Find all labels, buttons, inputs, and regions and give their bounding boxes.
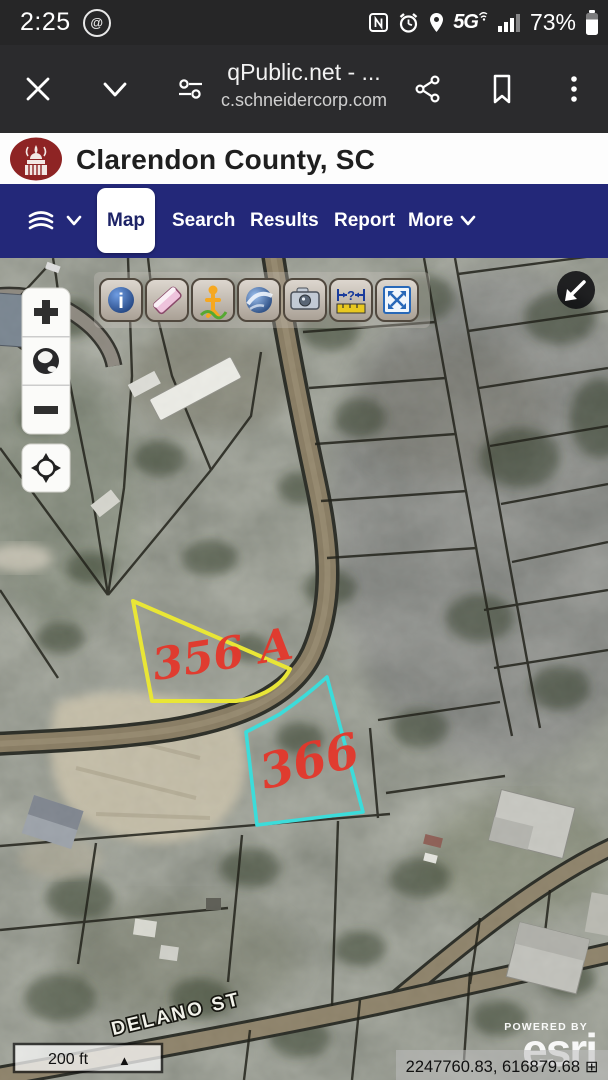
tab-report[interactable]: Report: [334, 210, 395, 232]
scale-label: 200 ft: [48, 1051, 89, 1068]
coordinates-value: 2247760.83, 616879.68: [406, 1058, 580, 1076]
map-toolbar: i: [94, 272, 430, 328]
signal-icon: [497, 13, 522, 33]
measure-tool-button[interactable]: ?: [330, 279, 372, 321]
battery-icon: [584, 9, 600, 36]
zoom-in-button[interactable]: [24, 290, 68, 335]
extent-arrows-icon: [384, 287, 410, 313]
page-domain: c.schneidercorp.com: [169, 90, 439, 111]
battery-percent: 73%: [530, 9, 576, 36]
phone-screen: 2:25 @ 5G: [0, 0, 608, 1080]
map-canvas[interactable]: 356 A 366 DELANO ST i: [0, 258, 608, 1080]
status-bar: 2:25 @ 5G: [0, 0, 608, 45]
alarm-icon: [397, 11, 420, 34]
locate-button[interactable]: [22, 444, 70, 492]
app-nav-bar: Map Search Results Report More: [0, 184, 608, 258]
photo-tool-button[interactable]: [284, 279, 326, 321]
google-earth-tool-button[interactable]: [238, 279, 280, 321]
tab-map[interactable]: Map: [97, 188, 155, 253]
tab-results[interactable]: Results: [250, 210, 319, 232]
zoom-extent-tool-button[interactable]: [376, 279, 418, 321]
location-icon: [428, 12, 445, 33]
streetview-tool-button[interactable]: [192, 279, 234, 321]
home-extent-button[interactable]: [24, 338, 68, 383]
svg-text:?: ?: [347, 288, 355, 303]
zoom-controls: [22, 288, 70, 492]
network-type: 5G: [453, 11, 489, 34]
data-saver-icon: @: [83, 9, 111, 37]
browser-toolbar: qPublic.net - ... c.schneidercorp.com: [0, 45, 608, 133]
tab-more[interactable]: More: [408, 210, 453, 232]
coordinates-expand-icon[interactable]: ⊞: [585, 1059, 598, 1076]
county-logo: [6, 135, 76, 186]
share-icon[interactable]: [414, 74, 442, 104]
county-title: Clarendon County, SC: [76, 133, 375, 184]
bookmark-icon[interactable]: [488, 73, 516, 105]
chevron-down-icon[interactable]: [100, 75, 130, 103]
wifi-call-icon: [478, 9, 489, 21]
tab-map-label: Map: [107, 210, 145, 232]
minus-icon: [34, 406, 58, 414]
layers-control[interactable]: [26, 208, 82, 234]
globe-icon: [33, 348, 59, 374]
map-container: 356 A 366 DELANO ST i: [0, 258, 608, 1080]
scale-bar: 200 ft ▲: [14, 1044, 162, 1072]
overflow-menu-icon[interactable]: [560, 74, 588, 104]
more-chevron-icon[interactable]: [460, 215, 476, 227]
coordinates-bar: 2247760.83, 616879.68 ⊞: [396, 1050, 608, 1080]
page-title: qPublic.net - ...: [169, 59, 439, 86]
identify-tool-button[interactable]: i: [100, 279, 142, 321]
close-icon[interactable]: [24, 75, 52, 103]
nfc-icon: [368, 12, 389, 33]
layers-icon: [26, 208, 56, 234]
page-title-block[interactable]: qPublic.net - ... c.schneidercorp.com: [169, 45, 439, 111]
status-icons: 5G 73%: [368, 9, 600, 36]
chevron-down-icon: [66, 215, 82, 227]
scale-arrow-icon[interactable]: ▲: [118, 1053, 131, 1068]
collapse-panel-button[interactable]: [557, 271, 595, 309]
tab-search[interactable]: Search: [172, 210, 235, 232]
clock: 2:25: [20, 8, 71, 37]
site-header: Clarendon County, SC: [0, 133, 608, 184]
zoom-out-button[interactable]: [24, 387, 68, 432]
satellite-imagery: [0, 258, 608, 1080]
svg-text:i: i: [118, 290, 124, 313]
eraser-tool-button[interactable]: [146, 279, 188, 321]
